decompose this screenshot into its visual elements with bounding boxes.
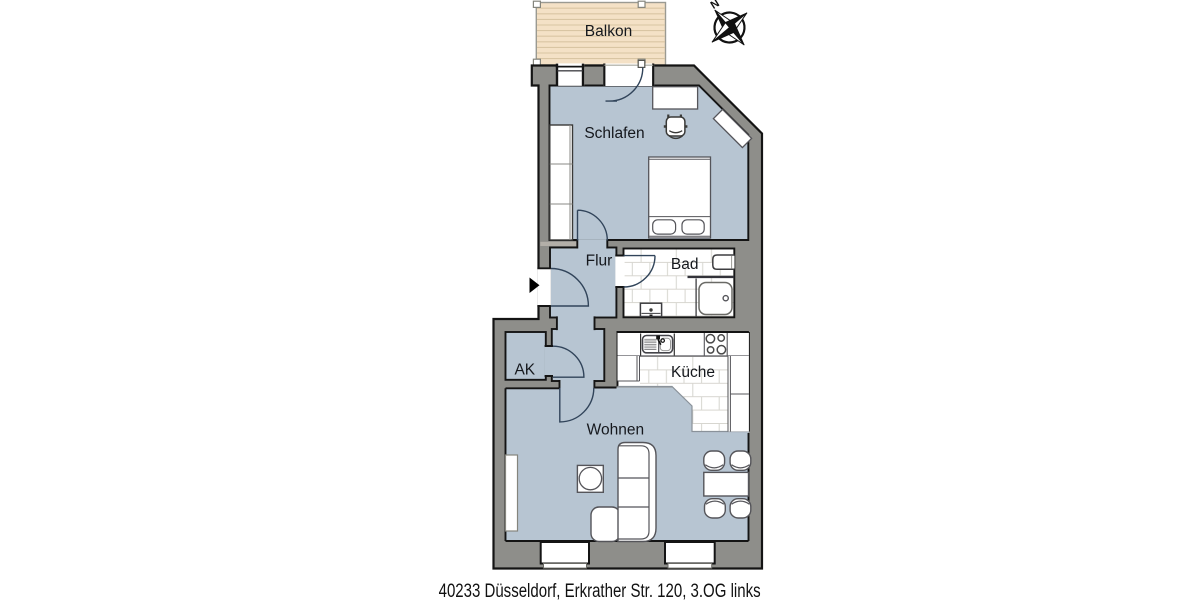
svg-text:Wohnen: Wohnen [587,422,644,439]
svg-text:N: N [709,0,722,12]
svg-text:AK: AK [514,362,535,379]
svg-text:40233 Düsseldorf, Erkrather St: 40233 Düsseldorf, Erkrather Str. 120, 3.… [439,581,761,600]
svg-text:Küche: Küche [671,364,715,381]
svg-text:Schlafen: Schlafen [584,125,644,142]
svg-text:Balkon: Balkon [585,23,632,40]
svg-text:Flur: Flur [586,253,613,270]
svg-text:Bad: Bad [671,256,699,273]
